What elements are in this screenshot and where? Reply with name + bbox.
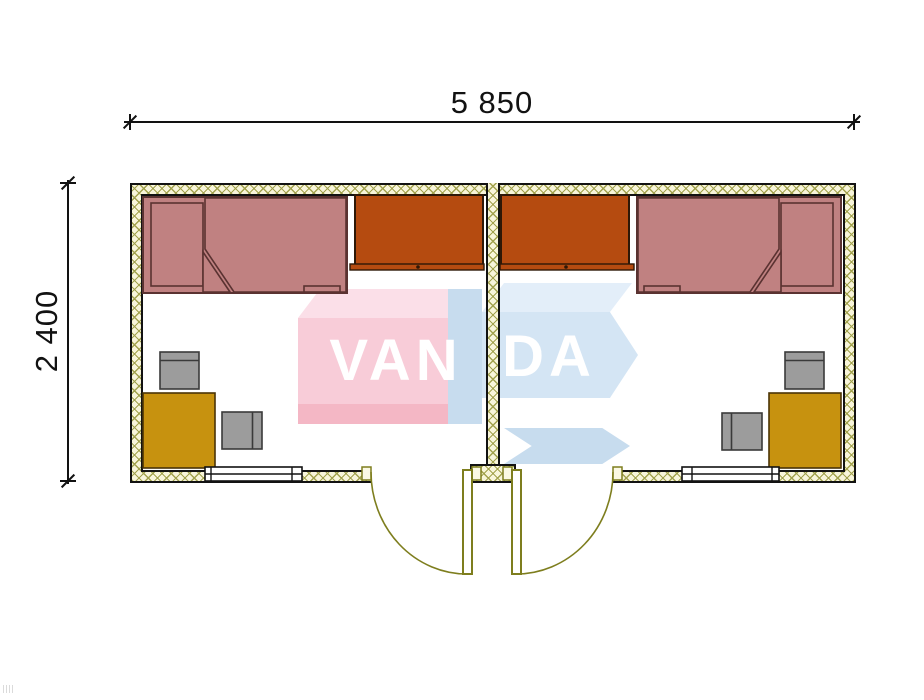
door-leaf-left (463, 470, 472, 574)
door-leaf-right (512, 470, 521, 574)
door-jamb (503, 467, 512, 480)
window-left (205, 467, 302, 481)
door-swing-arc-right (516, 472, 613, 574)
desk-left (143, 393, 215, 468)
desk-right (769, 393, 841, 468)
wardrobe-left (350, 195, 484, 270)
door-jamb (472, 467, 481, 480)
blanket-right (638, 198, 779, 292)
corner-mark (3, 685, 14, 693)
door-swing-arc-left (371, 472, 467, 574)
bed-left (143, 197, 347, 293)
floor-plan-drawing (0, 0, 924, 700)
chair-right-side (722, 413, 762, 450)
blanket-left (205, 198, 346, 292)
pillow-right (781, 203, 833, 286)
bed-right (637, 197, 841, 293)
wardrobe-right (500, 195, 634, 270)
door-left (371, 470, 472, 574)
window-right (682, 467, 779, 481)
pillow-left (151, 203, 203, 286)
door-jamb (613, 467, 622, 480)
door-right (512, 470, 613, 574)
door-jamb (362, 467, 371, 480)
chair-left-side (222, 412, 262, 449)
bed-foot-right (644, 286, 680, 292)
chair-left-top (160, 352, 199, 389)
chair-right-top (785, 352, 824, 389)
bed-foot-left (304, 286, 340, 292)
